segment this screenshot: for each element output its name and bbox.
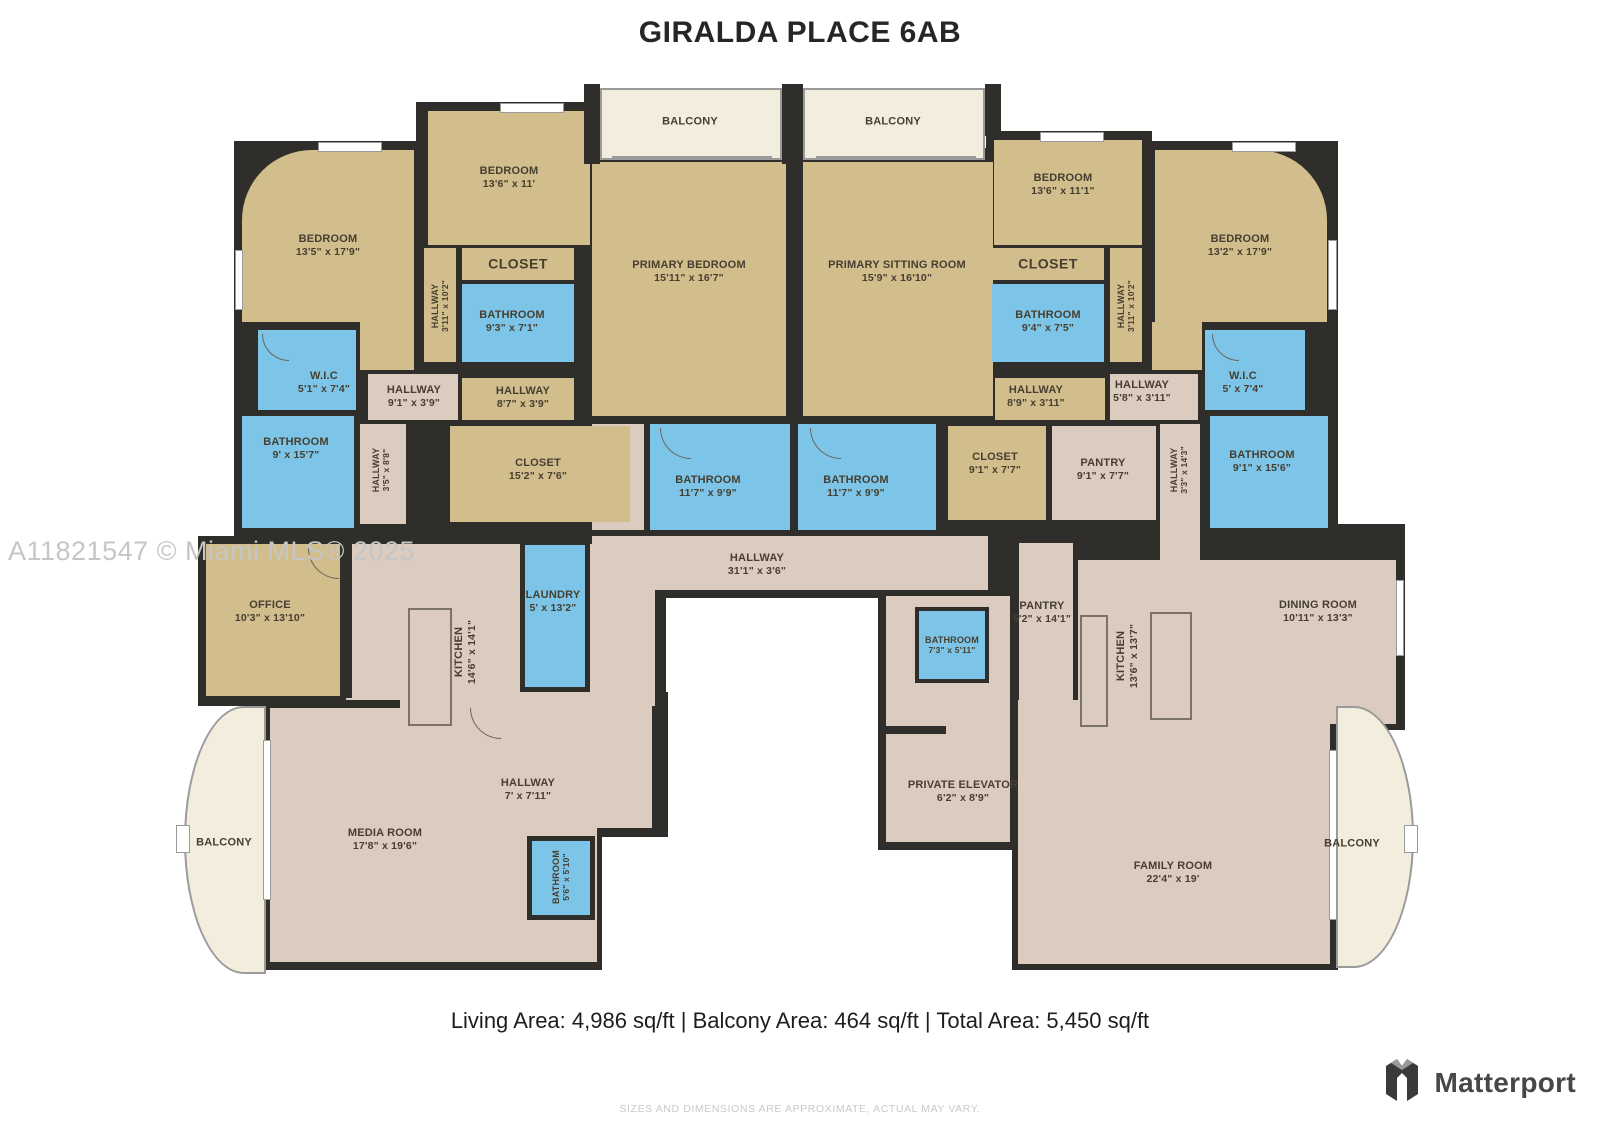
room-fill-bathroom-left-tall — [242, 416, 354, 528]
slider-door — [816, 156, 976, 158]
room-label-hallway-left-a: HALLWAY9'1" x 3'9" — [387, 384, 441, 410]
room-label-hallway-left-vert: HALLWAY3'5" x 8'8" — [371, 448, 391, 493]
window — [318, 142, 382, 152]
window — [1040, 132, 1104, 142]
mls-watermark: A11821547 © Miami MLS® 2025 — [8, 536, 415, 567]
window — [176, 825, 190, 853]
room-label-hallway-right-a: HALLWAY8'9" x 3'11" — [1007, 384, 1065, 410]
room-label-office: OFFICE10'3" x 13'10" — [235, 599, 305, 625]
window — [1328, 240, 1337, 310]
room-label-bathroom-center-a: BATHROOM11'7" x 9'9" — [675, 474, 741, 500]
matterport-wordmark: Matterport — [1435, 1067, 1576, 1099]
room-label-hallway-right-b: HALLWAY5'8" x 3'11" — [1113, 379, 1171, 405]
room-label-hallway-main: HALLWAY31'1" x 3'6" — [728, 552, 786, 578]
room-label-bathroom-left-tall: BATHROOM9' x 15'7" — [263, 436, 329, 462]
room-fill-primary-bedroom — [592, 162, 786, 416]
matterport-logo: Matterport — [1381, 1057, 1576, 1108]
window — [1396, 580, 1404, 656]
room-fill-hallway-main — [592, 536, 988, 590]
room-label-bedroom-left: BEDROOM13'5" x 17'9" — [296, 233, 360, 259]
wall-kitchen-media — [270, 700, 400, 708]
room-label-hallway-left-b: HALLWAY8'7" x 3'9" — [496, 385, 550, 411]
wall-chunk-between-balconies — [782, 84, 803, 164]
window — [235, 250, 243, 310]
window — [263, 740, 271, 900]
room-label-private-elevator: PRIVATE ELEVATOR6'2" x 8'9" — [908, 779, 1018, 805]
room-label-bathroom-small-right: BATHROOM7'3" x 5'11" — [925, 635, 979, 655]
room-label-bedroom-right: BEDROOM13'2" x 17'9" — [1208, 233, 1272, 259]
kitchen-island-left — [408, 608, 452, 726]
room-fill-bedroom-right-lower — [1152, 322, 1202, 370]
room-label-kitchen-right: KITCHEN13'6" x 13'7" — [1115, 624, 1141, 688]
room-label-pantry-lower: PANTRY5'2" x 14'1" — [1013, 600, 1071, 626]
room-label-pantry-upper: PANTRY9'1" x 7'7" — [1077, 457, 1129, 483]
room-label-hallway-upper-right: HALLWAY3'11" x 10'2" — [1116, 280, 1136, 332]
room-label-wic-left: W.I.C5'1" x 7'4" — [298, 370, 350, 396]
room-label-bathroom-ensuite-left: BATHROOM9'3" x 7'1" — [479, 309, 545, 335]
room-label-dining-room: DINING ROOM10'11" x 13'3" — [1279, 599, 1357, 625]
room-label-primary-bedroom: PRIMARY BEDROOM15'11" x 16'7" — [632, 259, 746, 285]
room-label-family-room: FAMILY ROOM22'4" x 19' — [1134, 860, 1213, 886]
room-label-bedroom-top-left: BEDROOM13'6" x 11' — [480, 165, 539, 191]
window — [1232, 142, 1296, 152]
window — [1329, 750, 1337, 920]
room-fill-family-room — [1018, 696, 1330, 964]
room-label-primary-sitting-room: PRIMARY SITTING ROOM15'9" x 16'10" — [828, 259, 966, 285]
window — [1404, 825, 1418, 853]
room-label-closet-right: CLOSET — [1018, 258, 1078, 271]
kitchen-counter-right — [1080, 615, 1108, 727]
room-label-closet-left: CLOSET — [488, 258, 548, 271]
room-label-kitchen-left: KITCHEN14'6" x 14'1" — [453, 620, 479, 684]
disclaimer-text: SIZES AND DIMENSIONS ARE APPROXIMATE, AC… — [0, 1103, 1600, 1115]
room-label-bathroom-center-b: BATHROOM11'7" x 9'9" — [823, 474, 889, 500]
room-fill-primary-sitting-room — [803, 162, 993, 416]
room-label-wic-right: W.I.C5' x 7'4" — [1223, 370, 1264, 396]
matterport-icon — [1381, 1057, 1423, 1108]
room-label-closet-center-right: CLOSET9'1" x 7'7" — [969, 451, 1021, 477]
area-summary: Living Area: 4,986 sq/ft | Balcony Area:… — [0, 1008, 1600, 1034]
room-label-laundry: LAUNDRY5' x 13'2" — [526, 589, 581, 615]
room-fill-bedroom-left-lower — [360, 322, 414, 370]
wall-elevator-top — [886, 726, 946, 734]
kitchen-island-right — [1150, 612, 1192, 720]
floor-plan-page: BALCONY BALCONY BEDROOM13'6" x 11' BEDRO… — [0, 0, 1600, 1130]
room-label-bathroom-ensuite-right: BATHROOM9'4" x 7'5" — [1015, 309, 1081, 335]
page-title: GIRALDA PLACE 6AB — [0, 16, 1600, 50]
room-label-balcony-top-left: BALCONY — [662, 116, 718, 129]
room-label-hallway-upper-left: HALLWAY3'11" x 10'2" — [430, 280, 450, 332]
wall-chunk-left-of-balcony — [584, 84, 600, 164]
room-label-bathroom-small-left: BATHROOM5'6" x 5'10" — [551, 850, 571, 904]
room-label-balcony-top-right: BALCONY — [865, 116, 921, 129]
room-fill-laundry — [520, 540, 590, 692]
room-label-hallway-entry-left: HALLWAY7' x 7'11" — [501, 777, 555, 803]
room-label-closet-center-left: CLOSET15'2" x 7'6" — [509, 457, 567, 483]
window — [500, 103, 564, 113]
room-label-hallway-right-vert: HALLWAY3'3" x 14'3" — [1169, 446, 1189, 494]
room-label-media-room: MEDIA ROOM17'8" x 19'6" — [348, 827, 422, 853]
slider-door — [612, 156, 772, 158]
room-label-balcony-bottom-left: BALCONY — [196, 837, 252, 850]
room-label-bedroom-top-right: BEDROOM13'6" x 11'1" — [1031, 172, 1095, 198]
room-label-balcony-bottom-right: BALCONY — [1324, 838, 1380, 851]
room-label-bathroom-right-tall: BATHROOM9'1" x 15'6" — [1229, 449, 1295, 475]
wall-chunk-right-of-balcony — [985, 84, 1001, 136]
